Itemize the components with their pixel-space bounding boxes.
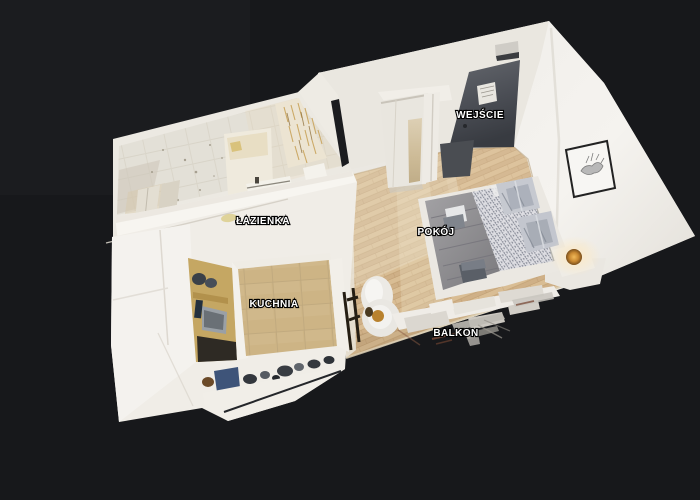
svg-text:BALKON: BALKON — [433, 328, 478, 339]
svg-text:ŁAZIENKA: ŁAZIENKA — [236, 216, 290, 227]
svg-text:POKÓJ: POKÓJ — [417, 225, 454, 238]
svg-text:WEJŚCIE: WEJŚCIE — [456, 108, 504, 121]
svg-text:KUCHNIA: KUCHNIA — [250, 299, 299, 310]
